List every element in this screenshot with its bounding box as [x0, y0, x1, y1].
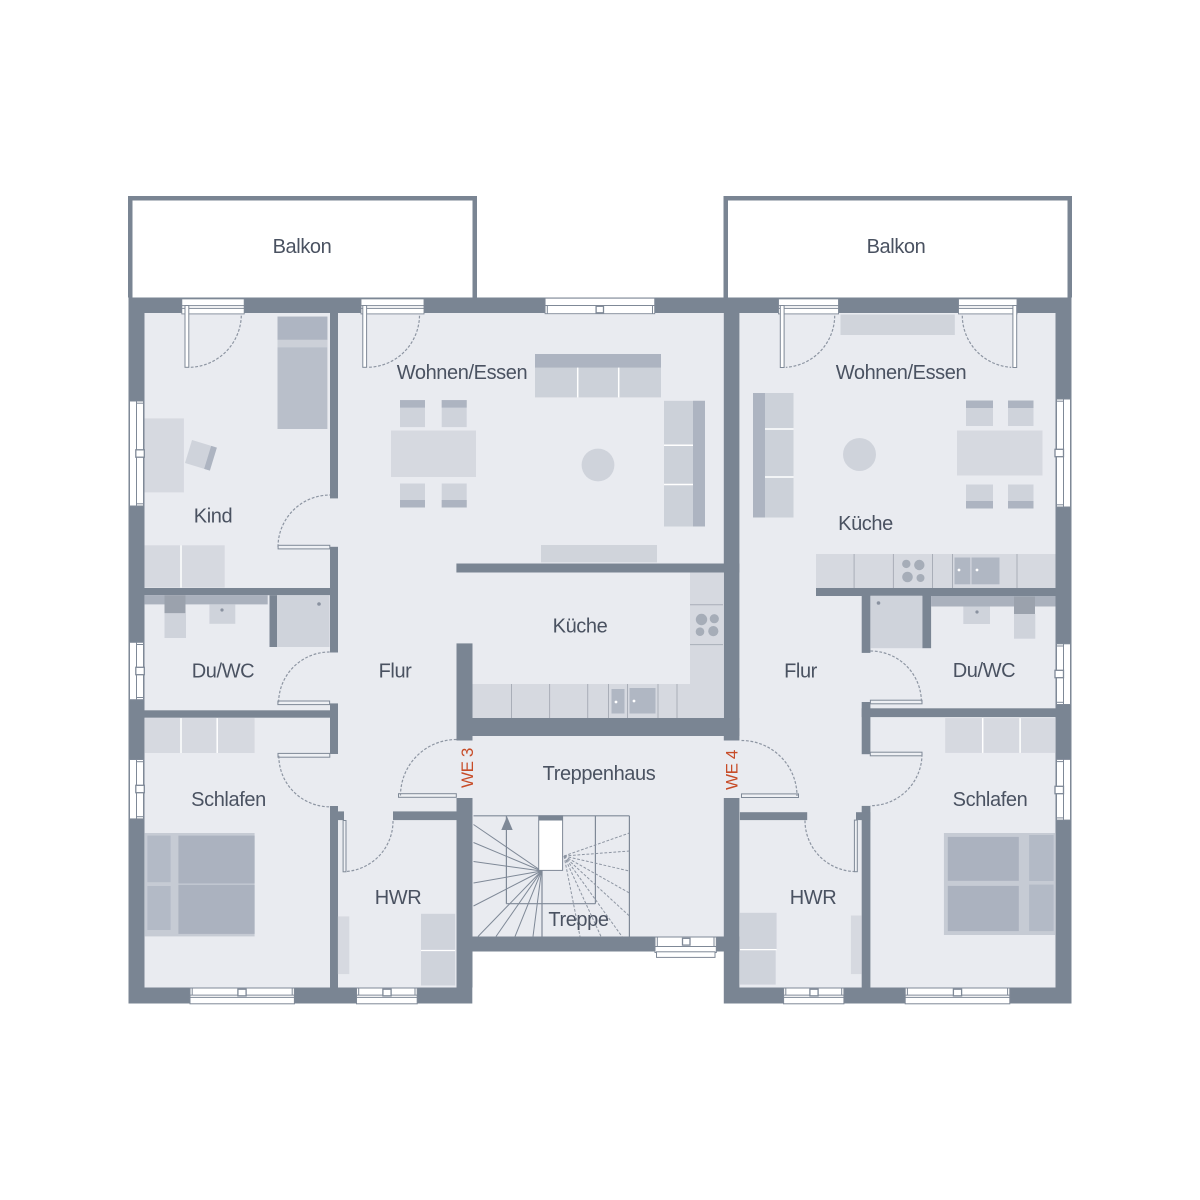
- svg-text:Du/WC: Du/WC: [192, 661, 254, 683]
- svg-text:HWR: HWR: [790, 887, 837, 909]
- svg-text:Balkon: Balkon: [273, 236, 332, 258]
- svg-text:Flur: Flur: [379, 661, 413, 683]
- svg-text:HWR: HWR: [375, 887, 422, 909]
- svg-text:Schlafen: Schlafen: [191, 789, 266, 811]
- svg-text:Flur: Flur: [784, 661, 818, 683]
- svg-text:Wohnen/Essen: Wohnen/Essen: [397, 362, 527, 384]
- svg-text:Küche: Küche: [838, 513, 893, 535]
- svg-text:Treppe: Treppe: [548, 909, 609, 931]
- svg-text:Schlafen: Schlafen: [953, 789, 1028, 811]
- svg-text:WE 4: WE 4: [723, 750, 742, 790]
- svg-text:Küche: Küche: [553, 616, 608, 638]
- svg-text:Du/WC: Du/WC: [953, 660, 1015, 682]
- svg-text:Balkon: Balkon: [867, 236, 926, 258]
- svg-text:WE 3: WE 3: [458, 748, 477, 788]
- svg-text:Wohnen/Essen: Wohnen/Essen: [836, 362, 966, 384]
- svg-text:Kind: Kind: [194, 506, 232, 528]
- svg-text:Treppenhaus: Treppenhaus: [543, 763, 656, 785]
